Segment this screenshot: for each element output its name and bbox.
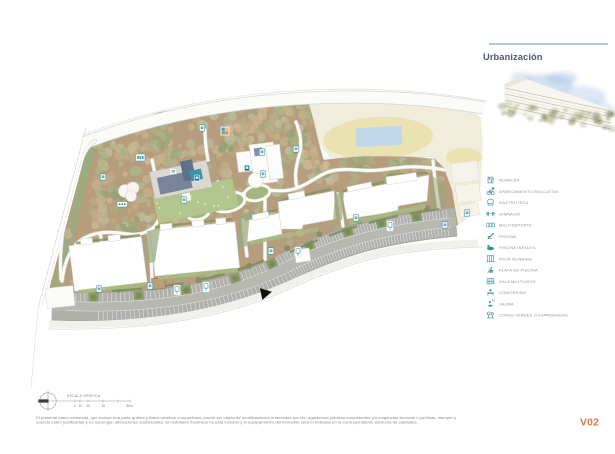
svg-text:GASTROTECA: GASTROTECA xyxy=(499,200,529,205)
svg-text:30: 30 xyxy=(102,404,106,408)
svg-text:0: 0 xyxy=(74,404,76,408)
svg-text:PISCINA INFANTIL: PISCINA INFANTIL xyxy=(499,245,537,250)
svg-text:APARCAMIENTO BICICLETAS: APARCAMIENTO BICICLETAS xyxy=(499,189,559,194)
svg-text:PLAYA DE PISCINA: PLAYA DE PISCINA xyxy=(499,268,538,273)
svg-text:V02: V02 xyxy=(580,418,599,429)
svg-text:ZONAS VERDES O AJARDINADAS: ZONAS VERDES O AJARDINADAS xyxy=(499,313,568,318)
svg-text:GIMNASIO: GIMNASIO xyxy=(499,211,520,216)
svg-text:50m: 50m xyxy=(127,404,134,408)
svg-text:SAUNA: SAUNA xyxy=(499,301,514,306)
svg-text:10: 10 xyxy=(79,404,83,408)
svg-text:SALA MULTIUSOS: SALA MULTIUSOS xyxy=(499,279,536,284)
svg-text:MULTIDEPORTE: MULTIDEPORTE xyxy=(499,223,532,228)
svg-text:PISTA RUNNING: PISTA RUNNING xyxy=(499,256,532,261)
svg-text:cuando estén justificadas y no: cuando estén justificadas y no supongan … xyxy=(36,421,418,425)
svg-text:El presente plano comercial, q: El presente plano comercial, que incluye… xyxy=(36,416,456,420)
svg-text:20: 20 xyxy=(87,404,91,408)
svg-text:PISCINA: PISCINA xyxy=(499,234,516,239)
svg-text:COWORKING: COWORKING xyxy=(499,290,526,295)
svg-text:Urbanización: Urbanización xyxy=(483,52,543,62)
svg-text:ESCALA GRÁFICA: ESCALA GRÁFICA xyxy=(67,394,101,398)
svg-text:ALMACÉN: ALMACÉN xyxy=(499,178,520,183)
